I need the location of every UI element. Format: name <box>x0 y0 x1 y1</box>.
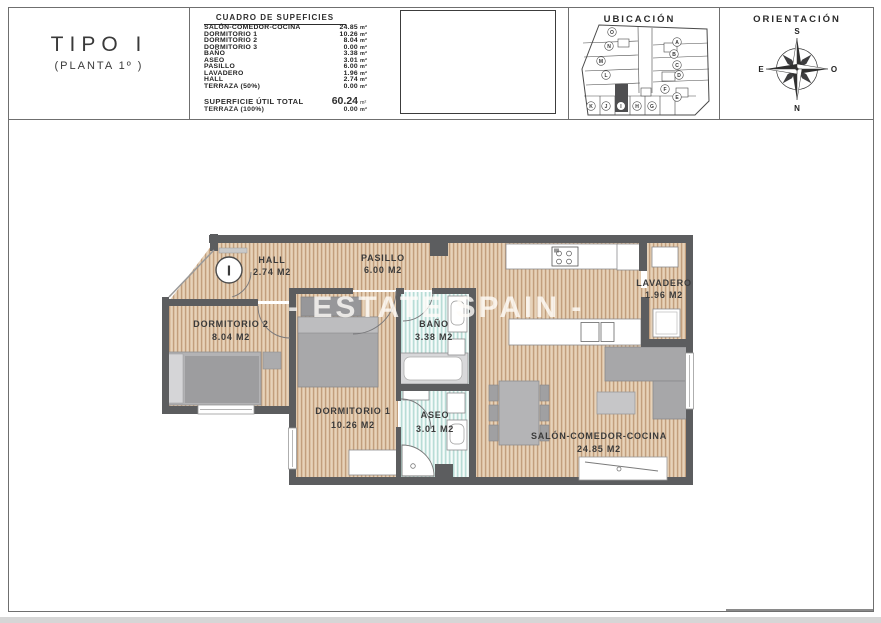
kitchen-island <box>509 319 641 345</box>
drawing-sheet: TIPO I (PLANTA 1º ) CUADRO DE SUPEFICIES… <box>8 7 874 612</box>
desk <box>349 450 397 475</box>
room-area-salon: 24.85 M2 <box>577 444 621 454</box>
room-label-banio: BAÑO <box>419 319 449 329</box>
unit-letter: N <box>607 44 611 50</box>
unit-letter: A <box>675 40 679 46</box>
unit-letter: G <box>650 104 654 110</box>
unit-letter: H <box>635 104 639 110</box>
room-area-pasillo: 6.00 M2 <box>364 265 402 275</box>
room-area-lavadero: 1.96 M2 <box>645 290 683 300</box>
room-label-lavadero: LAVADERO <box>636 278 692 288</box>
pillar <box>435 464 453 479</box>
unit-letter: O <box>610 30 614 36</box>
fridge <box>617 244 642 270</box>
window-salon <box>579 457 667 480</box>
sofa-chaise <box>653 381 689 419</box>
room-area-dormitorio2: 8.04 M2 <box>212 332 250 342</box>
pillar <box>430 243 448 256</box>
room-area-hall: 2.74 M2 <box>253 267 291 277</box>
room-area-aseo: 3.01 M2 <box>416 424 454 434</box>
unit-letter: B <box>672 52 676 58</box>
room-label-hall: HALL <box>258 255 285 265</box>
washbasin-aseo <box>447 393 465 413</box>
room-label-salon: SALÓN-COMEDOR-COCINA <box>531 430 667 441</box>
sofa <box>605 347 689 381</box>
sink <box>581 323 599 342</box>
compass-label-north: N <box>794 104 800 113</box>
washer <box>653 309 680 337</box>
compass-rose: S N E O <box>758 27 837 113</box>
unit-type-marker: I <box>216 257 242 283</box>
wardrobe <box>301 297 361 316</box>
compass-label-east: E <box>758 65 764 74</box>
signature-line <box>726 609 873 611</box>
room-label-dormitorio1: DORMITORIO 1 <box>315 406 390 416</box>
unit-letter: F <box>663 87 666 93</box>
room-label-aseo: ASEO <box>421 410 450 420</box>
room-label-pasillo: PASILLO <box>361 253 405 263</box>
unit-letter: L <box>604 73 607 79</box>
nightstand <box>263 352 281 369</box>
unit-letter: J <box>605 104 608 110</box>
room-area-banio: 3.38 M2 <box>415 332 453 342</box>
unit-letter: K <box>589 104 593 110</box>
room-label-dormitorio2: DORMITORIO 2 <box>193 319 268 329</box>
site-plan: A B C D E F G H I J K L M N O <box>582 25 709 115</box>
compass-label-south: S <box>794 27 800 36</box>
entry-threshold <box>219 248 247 253</box>
drawing-canvas: A B C D E F G H I J K L M N O <box>9 8 875 613</box>
unit-letter: M <box>599 59 603 65</box>
page-edge-strip <box>0 617 881 623</box>
unit-letter: D <box>677 73 681 79</box>
room-area-dormitorio1: 10.26 M2 <box>331 420 375 430</box>
unit-letter: C <box>675 63 679 69</box>
coffee-table <box>597 392 635 414</box>
site-boundary <box>582 25 709 115</box>
shelf-aseo <box>403 390 429 400</box>
unit-type-letter: I <box>227 263 231 280</box>
lavadero-counter <box>652 247 678 267</box>
compass-label-west: O <box>831 65 837 74</box>
